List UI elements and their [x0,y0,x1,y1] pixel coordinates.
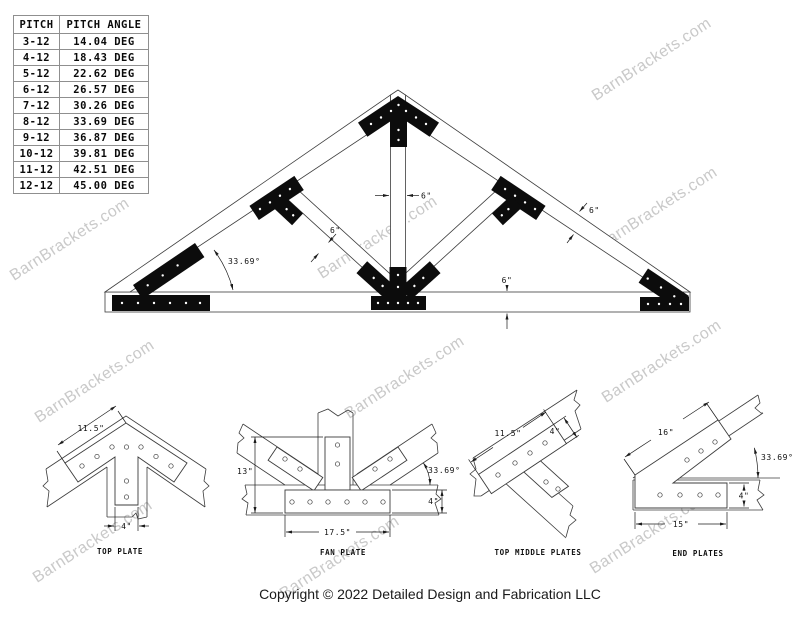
svg-text:13": 13" [237,467,253,476]
dim-angle: 33.69° [423,463,460,485]
table-row: 11-1242.51 DEG [14,162,149,178]
svg-text:11.5": 11.5" [77,424,104,433]
angle-cell: 30.26 DEG [60,98,149,114]
svg-text:4": 4" [739,492,750,501]
pitch-cell: 8-12 [14,114,60,130]
svg-text:33.69°: 33.69° [428,466,461,475]
svg-text:17.5": 17.5" [324,528,351,537]
pitch-angle-header: PITCH ANGLE [60,16,149,34]
pitch-cell: 11-12 [14,162,60,178]
table-row: 8-1233.69 DEG [14,114,149,130]
angle-cell: 18.43 DEG [60,50,149,66]
angle-cell: 42.51 DEG [60,162,149,178]
pitch-angle-label: 33.69° [228,257,261,266]
pitch-angle-dim: 33.69° [214,250,261,290]
svg-text:4": 4" [121,522,132,531]
detail-caption-fan-plate: FAN PLATE [268,548,418,557]
angle-cell: 22.62 DEG [60,66,149,82]
pitch-cell: 6-12 [14,82,60,98]
svg-text:33.69°: 33.69° [761,453,794,462]
table-row: 4-1218.43 DEG [14,50,149,66]
rafter-width-label: 6" [589,206,600,215]
detail-top-plate: 11.5" 4" [30,395,230,547]
detail-top-middle-plates: 11.5" 4" [465,390,640,542]
detail-plate [635,420,731,508]
dim-length: 17.5" [285,515,390,537]
svg-text:16": 16" [658,428,674,437]
detail-caption-end-plates: END PLATES [623,549,773,558]
peak-bracket [358,96,439,147]
dim-width: 4" [392,490,447,513]
dim-width: 4" [104,507,149,531]
table-row: 7-1230.26 DEG [14,98,149,114]
angle-cell: 45.00 DEG [60,178,149,194]
table-row: 5-1222.62 DEG [14,66,149,82]
pitch-cell: 5-12 [14,66,60,82]
pitch-cell: 3-12 [14,34,60,50]
drawing-page: BarnBrackets.com BarnBrackets.com BarnBr… [0,0,800,618]
table-row: 6-1226.57 DEG [14,82,149,98]
table-row: 10-1239.81 DEG [14,146,149,162]
detail-end-plates: 16" 33.69° 4" 15" [615,385,800,560]
detail-caption-top-middle-plates: TOP MIDDLE PLATES [458,548,618,557]
angle-cell: 26.57 DEG [60,82,149,98]
dim-bottom: 15" [635,512,727,529]
king-post-width-label: 6" [421,192,432,201]
chord-depth-label: 6" [502,276,513,285]
detail-fan-plate: 13" 33.69° 4" 17.5" [235,390,465,548]
angle-cell: 14.04 DEG [60,34,149,50]
angle-cell: 36.87 DEG [60,130,149,146]
detail-caption-top-plate: TOP PLATE [45,547,195,556]
angle-cell: 39.81 DEG [60,146,149,162]
pitch-cell: 12-12 [14,178,60,194]
pitch-cell: 10-12 [14,146,60,162]
svg-text:4": 4" [550,427,561,436]
pitch-angle-table: PITCH PITCH ANGLE 3-1214.04 DEG 4-1218.4… [13,15,149,194]
svg-text:15": 15" [673,520,689,529]
table-row: 9-1236.87 DEG [14,130,149,146]
strut-width-label: 6" [330,226,341,235]
svg-text:11.5": 11.5" [494,429,521,438]
pitch-cell: 4-12 [14,50,60,66]
table-row: 3-1214.04 DEG [14,34,149,50]
pitch-cell: 9-12 [14,130,60,146]
right-rafter-beam [406,95,691,292]
detail-plate [268,437,407,513]
svg-text:4": 4" [428,497,439,506]
angle-cell: 33.69 DEG [60,114,149,130]
pitch-header: PITCH [14,16,60,34]
detail-plate [65,423,187,505]
pitch-cell: 7-12 [14,98,60,114]
copyright-line: Copyright © 2022 Detailed Design and Fab… [80,586,780,602]
dim-angle: 33.69° [754,448,793,478]
dim-width: 4" [729,483,749,508]
table-row: 12-1245.00 DEG [14,178,149,194]
